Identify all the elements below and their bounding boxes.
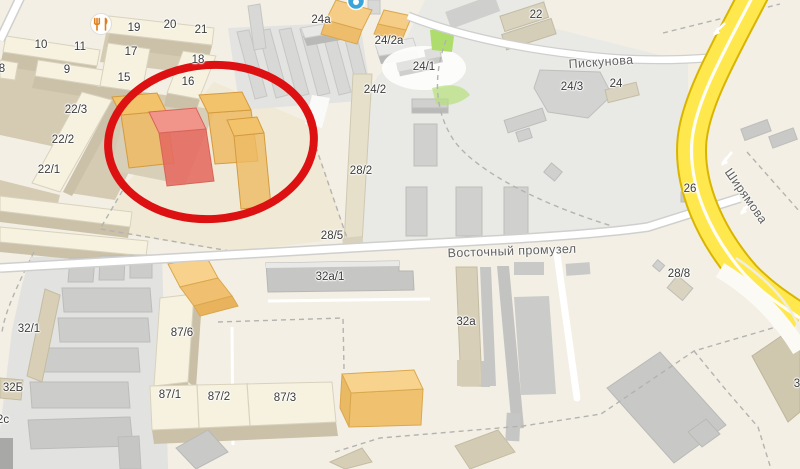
poi-icon[interactable]: [348, 0, 365, 10]
map-canvas[interactable]: [0, 0, 800, 469]
path-road-small: [268, 299, 430, 301]
building-24-1-highlight: [382, 46, 466, 90]
restaurant-icon[interactable]: [91, 14, 112, 35]
building-32a1: [266, 261, 414, 292]
map-viewport[interactable]: 1011981920211715181622/322/222/124а24/2а…: [0, 0, 800, 469]
orange-building-87-3-east: [340, 370, 423, 427]
